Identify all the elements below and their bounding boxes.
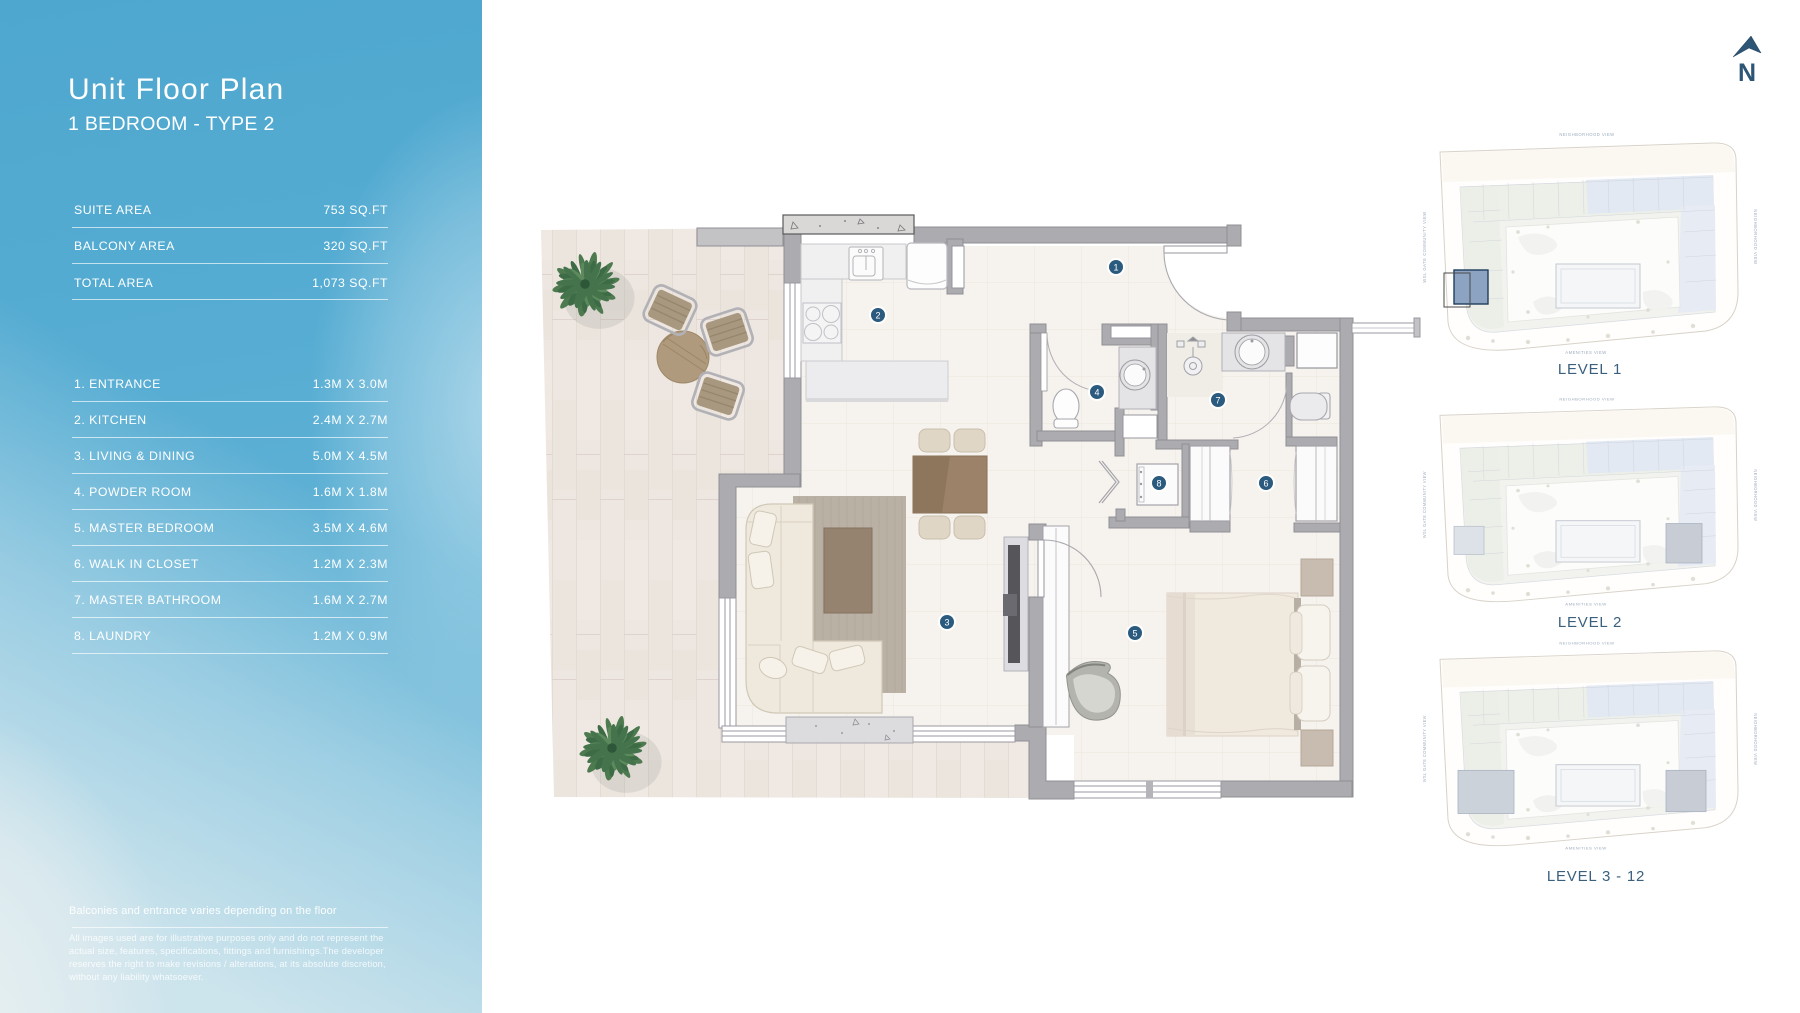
svg-text:LEVEL 2: LEVEL 2 [1558,614,1622,631]
svg-text:WSL GATE COMMUNITY VIEW: WSL GATE COMMUNITY VIEW [1422,715,1427,782]
svg-text:LEVEL 3 - 12: LEVEL 3 - 12 [1547,868,1645,885]
svg-text:1: 1 [1113,263,1118,273]
svg-text:AMENITIES VIEW: AMENITIES VIEW [1565,601,1606,606]
svg-text:LEVEL 1: LEVEL 1 [1558,361,1622,378]
svg-text:NEIGHBORHOOD VIEW: NEIGHBORHOOD VIEW [1559,396,1614,401]
svg-text:5: 5 [1132,629,1137,639]
svg-text:WSL GATE COMMUNITY VIEW: WSL GATE COMMUNITY VIEW [1422,471,1427,538]
svg-text:AMENITIES VIEW: AMENITIES VIEW [1565,845,1606,850]
svg-text:NEIGHBORHOOD VIEW: NEIGHBORHOOD VIEW [1559,640,1614,645]
svg-text:6: 6 [1263,479,1268,489]
svg-text:NEIGHBORHOOD VIEW: NEIGHBORHOOD VIEW [1753,469,1758,521]
svg-text:3: 3 [944,618,949,628]
svg-text:8: 8 [1156,479,1161,489]
svg-text:N: N [1738,59,1756,87]
svg-text:WSL GATE COMMUNITY VIEW: WSL GATE COMMUNITY VIEW [1422,211,1427,282]
svg-text:4: 4 [1094,388,1099,398]
svg-text:NEIGHBORHOOD VIEW: NEIGHBORHOOD VIEW [1753,713,1758,765]
svg-text:2: 2 [875,311,880,321]
svg-text:NEIGHBORHOOD VIEW: NEIGHBORHOOD VIEW [1753,209,1758,264]
svg-text:7: 7 [1215,396,1220,406]
svg-text:NEIGHBORHOOD VIEW: NEIGHBORHOOD VIEW [1559,132,1614,137]
svg-text:AMENITIES VIEW: AMENITIES VIEW [1565,350,1606,355]
